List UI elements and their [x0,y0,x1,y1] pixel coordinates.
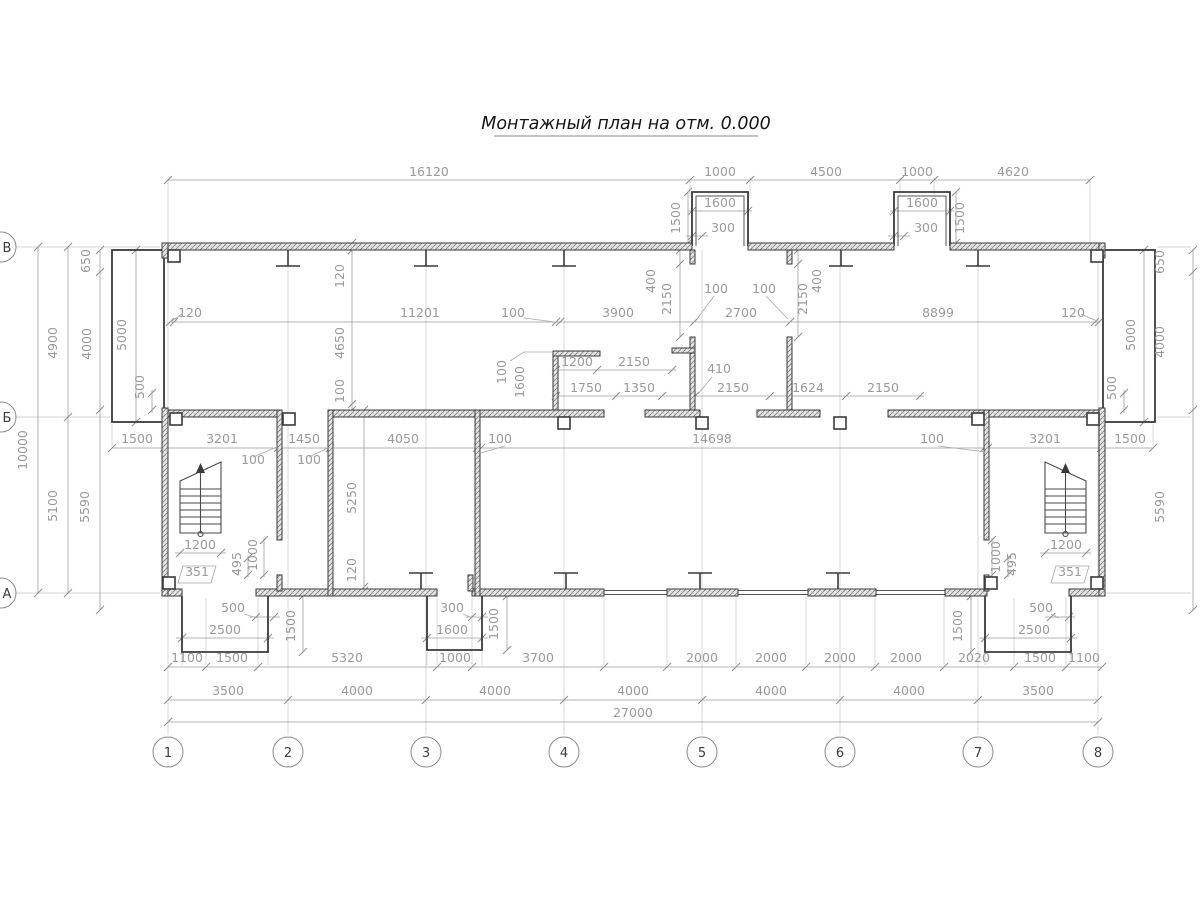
column-t-top [829,250,853,266]
leader [697,296,714,319]
dim-label: 1000 [245,539,260,571]
dim-label: 100 [488,431,512,446]
dim-label: 100 [297,452,321,467]
dim-label: 2150 [618,354,650,369]
dim-label: 100 [241,452,265,467]
dim-label: 2020 [958,650,990,665]
dim-label: 1600 [436,622,468,637]
dim-label: 2700 [725,305,757,320]
dim-label: 5000 [1123,319,1138,351]
column-square [1087,413,1099,425]
dim-label: 300 [914,220,938,235]
dim-label: 120 [332,264,347,288]
column-t-bottom [409,573,433,589]
dim-label: 2150 [867,380,899,395]
column-square [696,417,708,429]
walls [162,243,1105,596]
column-square [972,413,984,425]
dim-label: 1100 [171,650,203,665]
dim-label: 120 [344,558,359,582]
wall-segment [553,351,558,410]
dim-label: 5590 [1152,491,1167,523]
dim-label: 5000 [114,319,129,351]
column-t-bottom [688,573,712,589]
dim-label: 100 [501,305,525,320]
dim-label: 5100 [45,490,60,522]
dim-label: 5250 [344,482,359,514]
dim-label: 3900 [602,305,634,320]
dim-label: 4500 [810,164,842,179]
dim-label: 2000 [824,650,856,665]
dim-label: 27000 [613,705,653,720]
dim-label: 2000 [686,650,718,665]
dim-label: 1500 [668,202,683,234]
dim-label: 1500 [121,431,153,446]
dim-label: 351 [1058,564,1082,579]
wall-segment [950,243,1105,250]
dim-label: 120 [1061,305,1085,320]
dim-label: 2150 [659,283,674,315]
dim-label: 11201 [400,305,440,320]
dim-label: 120 [178,305,202,320]
dim-label: 5590 [77,491,92,523]
axis-bubble-label: 6 [836,746,844,761]
wall-segment [787,250,792,264]
dim-label: 1000 [439,650,471,665]
wall-segment [748,243,894,250]
dimension-lines [34,176,1197,726]
dim-label: 1500 [283,610,298,642]
dim-label: 1750 [570,380,602,395]
column-t-top [276,250,300,266]
dim-label: 1100 [1068,650,1100,665]
dim-label: 400 [643,269,658,293]
column-square [1091,250,1103,262]
column-square [985,577,997,589]
wall-segment [162,408,168,596]
dim-label: 4000 [479,683,511,698]
dim-label: 4000 [755,683,787,698]
wall-segment [787,337,792,410]
dim-label: 4050 [387,431,419,446]
column-t-top [552,250,576,266]
left-stair [180,462,221,537]
dim-label: 100 [752,281,776,296]
column-square [1091,577,1103,589]
wall-segment [162,243,168,258]
floor-plan-canvas: 12345678ВБА [0,0,1200,900]
dim-label: 4000 [1152,326,1167,358]
leader [766,296,788,319]
axis-bubble-label: 7 [974,746,982,761]
axis-bubble-label: В [3,241,12,256]
dim-label: 400 [809,269,824,293]
dim-label: 650 [1152,250,1167,274]
dim-label: 410 [707,361,731,376]
dim-label: 1200 [561,354,593,369]
column-square [163,577,175,589]
wall-segment [645,410,700,417]
column-t-top [414,250,438,266]
dim-label: 4000 [893,683,925,698]
axis-bubble-label: Б [3,411,12,426]
dim-label: 4000 [617,683,649,698]
dim-label: 2000 [755,650,787,665]
thin-structures [112,192,1155,652]
axis-bubble-label: А [3,587,12,602]
dim-label: 1624 [792,380,824,395]
columns [163,250,1103,589]
leader [463,614,472,618]
dim-label: 1350 [623,380,655,395]
column-square [834,417,846,429]
dim-label: 100 [704,281,728,296]
leader [698,377,712,394]
dim-label: 500 [1029,600,1053,615]
axis-bubble-label: 8 [1094,746,1102,761]
dim-label: 1600 [906,195,938,210]
dim-label: 1200 [184,537,216,552]
axis-bubble-label: 2 [284,746,292,761]
wall-segment [475,410,480,596]
plan-title: Монтажный план на отм. 0.000 [481,114,771,134]
dim-label: 1000 [901,164,933,179]
dim-label: 2500 [209,622,241,637]
dim-label: 100 [494,360,509,384]
dim-label: 1450 [288,431,320,446]
dim-label: 1500 [486,608,501,640]
wall-segment [1099,408,1105,596]
wall-segment [256,589,437,596]
dim-label: 300 [711,220,735,235]
dim-label: 650 [78,249,93,273]
axis-bubble-label: 4 [560,746,568,761]
title-block: Монтажный план на отм. 0.000 [481,114,771,136]
dim-label: 1500 [952,202,967,234]
axis-bubble-label: 1 [164,746,172,761]
dim-label: 2500 [1018,622,1050,637]
leader [938,446,986,452]
dim-label: 495 [229,552,244,576]
leader [524,318,555,322]
dim-label: 4000 [79,328,94,360]
wall-segment [328,410,604,417]
column-t-bottom [826,573,850,589]
axis-bubble-label: 3 [422,746,430,761]
column-square [283,413,295,425]
dim-label: 500 [132,375,147,399]
dim-label: 1000 [988,541,1003,573]
dim-label: 1600 [512,366,527,398]
dim-label: 1200 [1050,537,1082,552]
dim-label: 1600 [704,195,736,210]
dim-label: 2000 [890,650,922,665]
dim-label: 500 [221,600,245,615]
dim-label: 4650 [332,327,347,359]
column-square [558,417,570,429]
dim-label: 1500 [950,610,965,642]
column-t-top [966,250,990,266]
dim-label: 3201 [1029,431,1061,446]
dim-label: 1500 [1024,650,1056,665]
dim-label: 3500 [1022,683,1054,698]
dim-label: 4620 [997,164,1029,179]
right-stair [1045,462,1086,537]
dim-label: 3500 [212,683,244,698]
dim-label: 351 [185,564,209,579]
wall-segment [468,575,473,591]
wall-segment [277,575,282,591]
leader [244,614,257,618]
dim-label: 14698 [692,431,732,446]
dim-label: 4900 [45,327,60,359]
dim-label: 1500 [1114,431,1146,446]
up-arrow-icon [1061,463,1070,473]
leader [510,352,553,361]
wall-segment [672,348,695,353]
wall-segment [757,410,820,417]
dim-label: 16120 [409,164,449,179]
wall-segment [808,589,876,596]
wall-segment [690,250,695,264]
wall-segment [328,410,333,596]
wall-segment [472,589,604,596]
dim-label: 3201 [206,431,238,446]
dim-label: 1500 [216,650,248,665]
window-sills [604,591,945,595]
dim-label: 10000 [15,430,30,470]
dim-label: 100 [332,379,347,403]
wall-segment [277,410,282,540]
dim-label: 495 [1004,552,1019,576]
axis-bubble-label: 5 [698,746,706,761]
column-square [168,250,180,262]
dim-label: 5320 [331,650,363,665]
wall-segment [984,410,989,540]
dim-label: 2150 [717,380,749,395]
drawing-page: 12345678ВБА [0,0,1200,900]
dim-label: 300 [440,600,464,615]
leader [481,446,505,453]
dim-label: 500 [1104,376,1119,400]
dim-label: 2150 [795,283,810,315]
dim-label: 3700 [522,650,554,665]
dim-label: 100 [920,431,944,446]
dim-label: 4000 [341,683,373,698]
column-t-bottom [554,573,578,589]
wall-segment [667,589,738,596]
column-square [170,413,182,425]
wall-segment [162,243,692,250]
wall-segment [168,410,282,417]
dim-label: 8899 [922,305,954,320]
up-arrow-icon [196,463,205,473]
wall-segment [945,589,987,596]
wall-segment [888,410,1103,417]
dim-label: 1000 [704,164,736,179]
